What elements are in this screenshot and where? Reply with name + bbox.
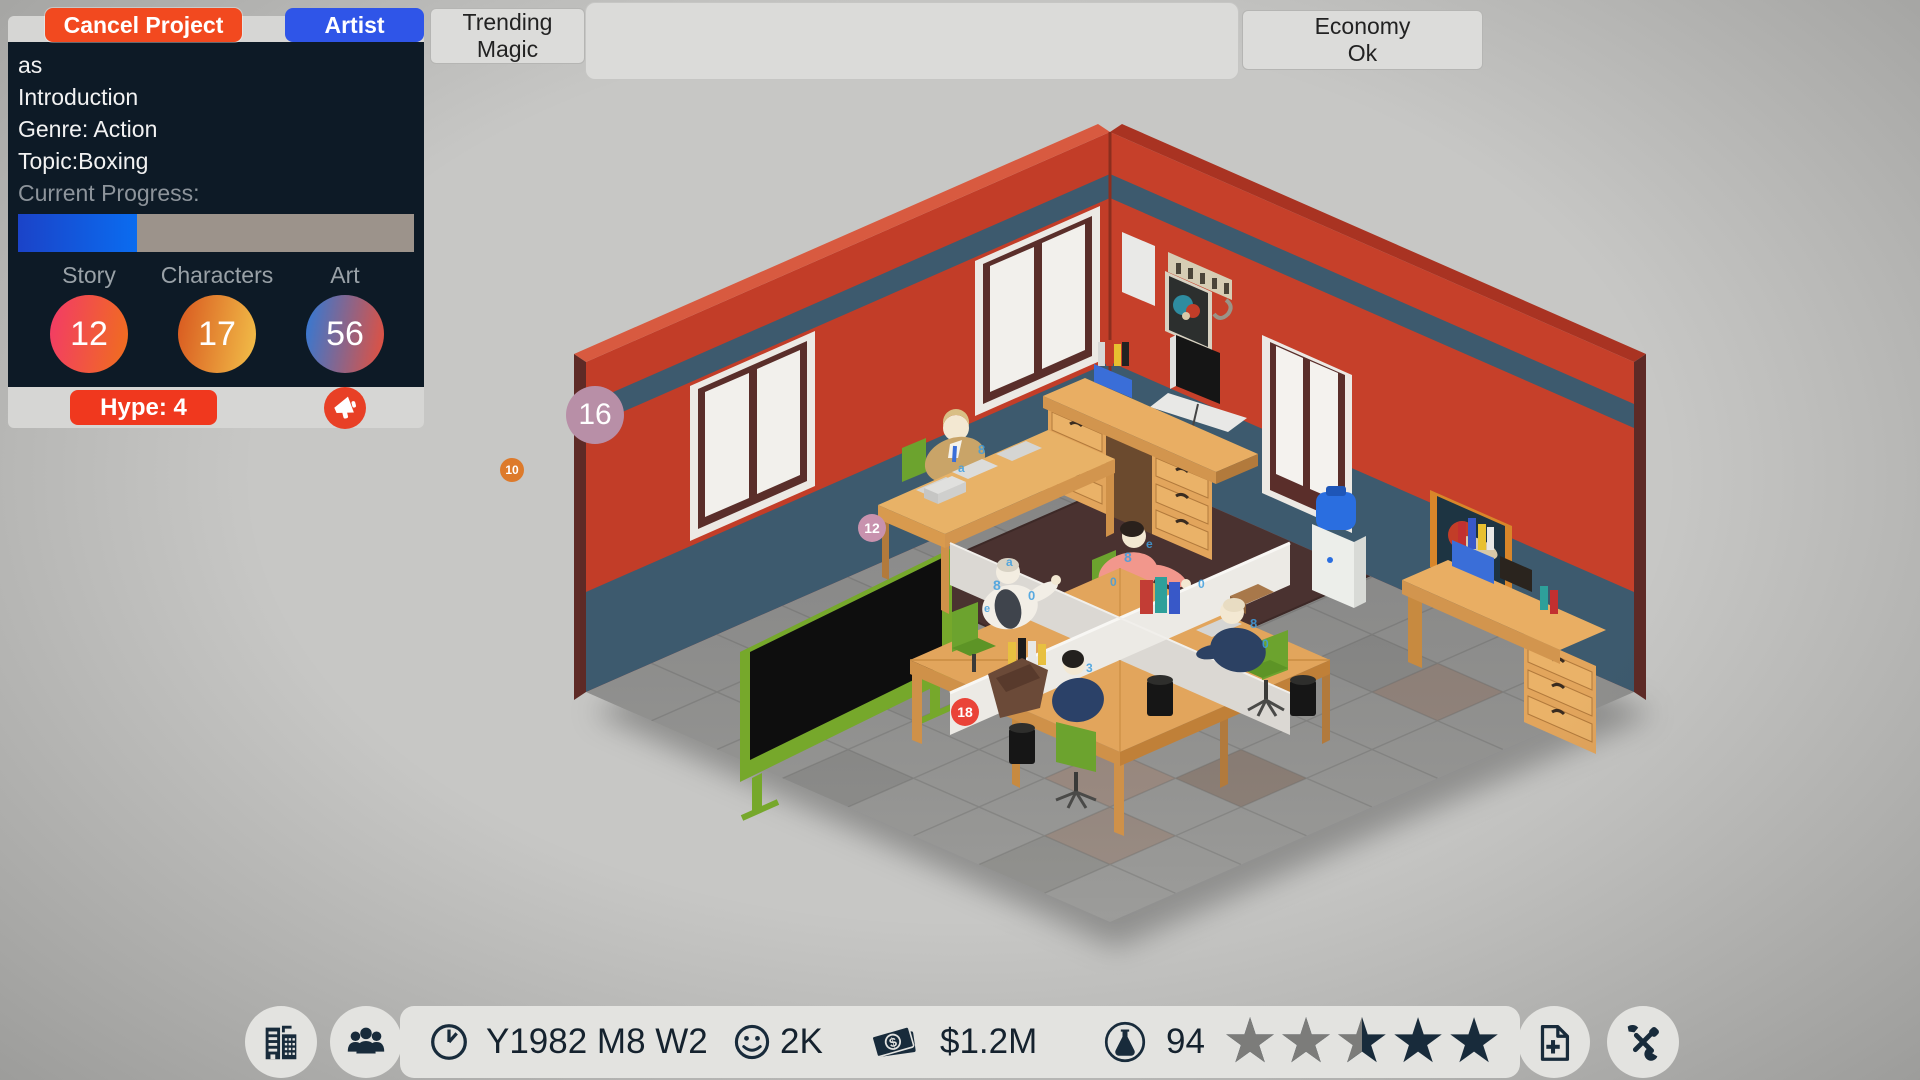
trending-line1: Trending <box>463 9 553 36</box>
trending-button[interactable]: Trending Magic <box>430 8 585 64</box>
stat-story: Story 12 <box>34 262 144 373</box>
buildings-icon <box>258 1019 304 1065</box>
object-badge-12[interactable]: 12 <box>858 514 886 542</box>
project-panel-body: as Introduction Genre: Action Topic:Boxi… <box>8 42 424 387</box>
research-count: 94 <box>1166 1006 1205 1078</box>
rating-star: ★★ <box>1334 1011 1390 1073</box>
new-project-button[interactable] <box>1518 1006 1590 1078</box>
game-screen: 8a 0e 8e 0 80 a8 03 16 10 12 18 Cancel P… <box>0 0 1920 1080</box>
trending-line2: Magic <box>477 36 538 63</box>
fans-count: 2K <box>780 1006 823 1078</box>
project-topic: Topic:Boxing <box>18 145 414 177</box>
clock-icon <box>426 1006 472 1078</box>
stat-story-value: 12 <box>50 295 128 373</box>
stat-characters-label: Characters <box>161 262 273 289</box>
svg-text:e: e <box>984 603 990 615</box>
project-genre: Genre: Action <box>18 113 414 145</box>
cancel-project-button[interactable]: Cancel Project <box>45 8 242 42</box>
object-badge-18[interactable]: 18 <box>951 698 979 726</box>
tools-icon <box>1620 1019 1666 1065</box>
stat-art-value: 56 <box>306 295 384 373</box>
megaphone-icon[interactable] <box>324 387 366 429</box>
progress-fill <box>18 214 137 252</box>
new-document-icon <box>1531 1019 1577 1065</box>
svg-text:3: 3 <box>1086 661 1093 675</box>
stat-characters-value: 17 <box>178 295 256 373</box>
fans-icon <box>730 1006 774 1078</box>
progress-bar <box>18 214 414 252</box>
project-stats: Story 12 Characters 17 Art 56 <box>18 252 414 377</box>
hype-button[interactable]: Hype: 4 <box>70 390 217 425</box>
svg-text:8: 8 <box>1124 549 1132 565</box>
economy-line1: Economy <box>1315 13 1411 40</box>
svg-text:a: a <box>1006 555 1013 569</box>
svg-text:0: 0 <box>1198 577 1205 591</box>
money-icon: $ <box>862 1006 926 1078</box>
stat-art: Art 56 <box>290 262 400 373</box>
svg-text:a: a <box>958 461 965 475</box>
game-date: Y1982 M8 W2 <box>486 1006 708 1078</box>
svg-text:0: 0 <box>1110 575 1117 589</box>
svg-text:e: e <box>1146 537 1153 551</box>
buildings-button[interactable] <box>245 1006 317 1078</box>
project-panel-header: Cancel Project Artist <box>8 16 424 42</box>
staff-button[interactable] <box>330 1006 402 1078</box>
object-badge-10[interactable]: 10 <box>500 458 524 482</box>
svg-text:8: 8 <box>993 577 1001 593</box>
divider-book <box>1140 580 1153 614</box>
svg-text:8: 8 <box>1250 616 1257 631</box>
artist-button[interactable]: Artist <box>285 8 424 42</box>
rating-star: ★★ <box>1278 1011 1334 1073</box>
stat-story-label: Story <box>62 262 116 289</box>
room-level-badge[interactable]: 16 <box>566 386 624 444</box>
rating-star: ★ <box>1446 1011 1502 1073</box>
economy-button[interactable]: Economy Ok <box>1242 10 1483 70</box>
project-panel: Cancel Project Artist as Introduction Ge… <box>8 16 424 428</box>
divider-book <box>1155 577 1167 613</box>
staff-icon <box>343 1019 389 1065</box>
rating-star: ★ <box>1390 1011 1446 1073</box>
stat-art-label: Art <box>330 262 359 289</box>
project-stage: Introduction <box>18 81 414 113</box>
money-amount: $1.2M <box>940 1006 1037 1078</box>
hype-row: Hype: 4 <box>8 387 424 428</box>
economy-line2: Ok <box>1348 40 1377 67</box>
project-name: as <box>18 49 414 81</box>
svg-text:0: 0 <box>1262 637 1269 651</box>
svg-text:8: 8 <box>978 442 985 457</box>
rating-star: ★★ <box>1222 1011 1278 1073</box>
progress-label: Current Progress: <box>18 177 414 209</box>
hud-bar: Y1982 M8 W2 2K $ $1.2M 94 ★★★★★★★★ <box>400 1006 1520 1078</box>
stat-characters: Characters 17 <box>162 262 272 373</box>
settings-button[interactable] <box>1607 1006 1679 1078</box>
divider-book <box>1169 582 1180 614</box>
research-icon <box>1100 1006 1150 1078</box>
message-box <box>585 2 1239 80</box>
svg-text:0: 0 <box>1028 588 1035 603</box>
studio-rating-stars: ★★★★★★★★ <box>1222 1006 1502 1078</box>
